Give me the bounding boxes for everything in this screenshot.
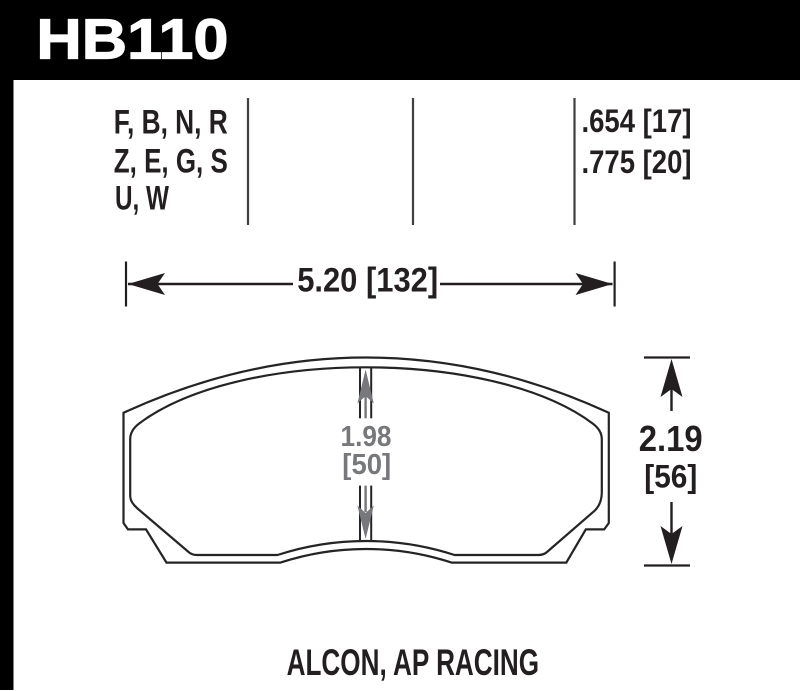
- svg-text:F, B, N, R: F, B, N, R: [114, 104, 228, 142]
- svg-text:U, W: U, W: [115, 179, 170, 217]
- svg-text:.654 [17]: .654 [17]: [582, 103, 692, 139]
- svg-text:5.20 [132]: 5.20 [132]: [297, 262, 438, 300]
- svg-text:Z, E, G, S: Z, E, G, S: [114, 142, 228, 180]
- svg-text:[56]: [56]: [644, 459, 697, 495]
- svg-text:2.19: 2.19: [639, 418, 703, 459]
- svg-text:.775 [20]: .775 [20]: [582, 144, 692, 180]
- svg-text:HB110: HB110: [36, 8, 228, 71]
- svg-text:ALCON, AP RACING: ALCON, AP RACING: [287, 642, 539, 683]
- svg-text:[50]: [50]: [342, 449, 391, 481]
